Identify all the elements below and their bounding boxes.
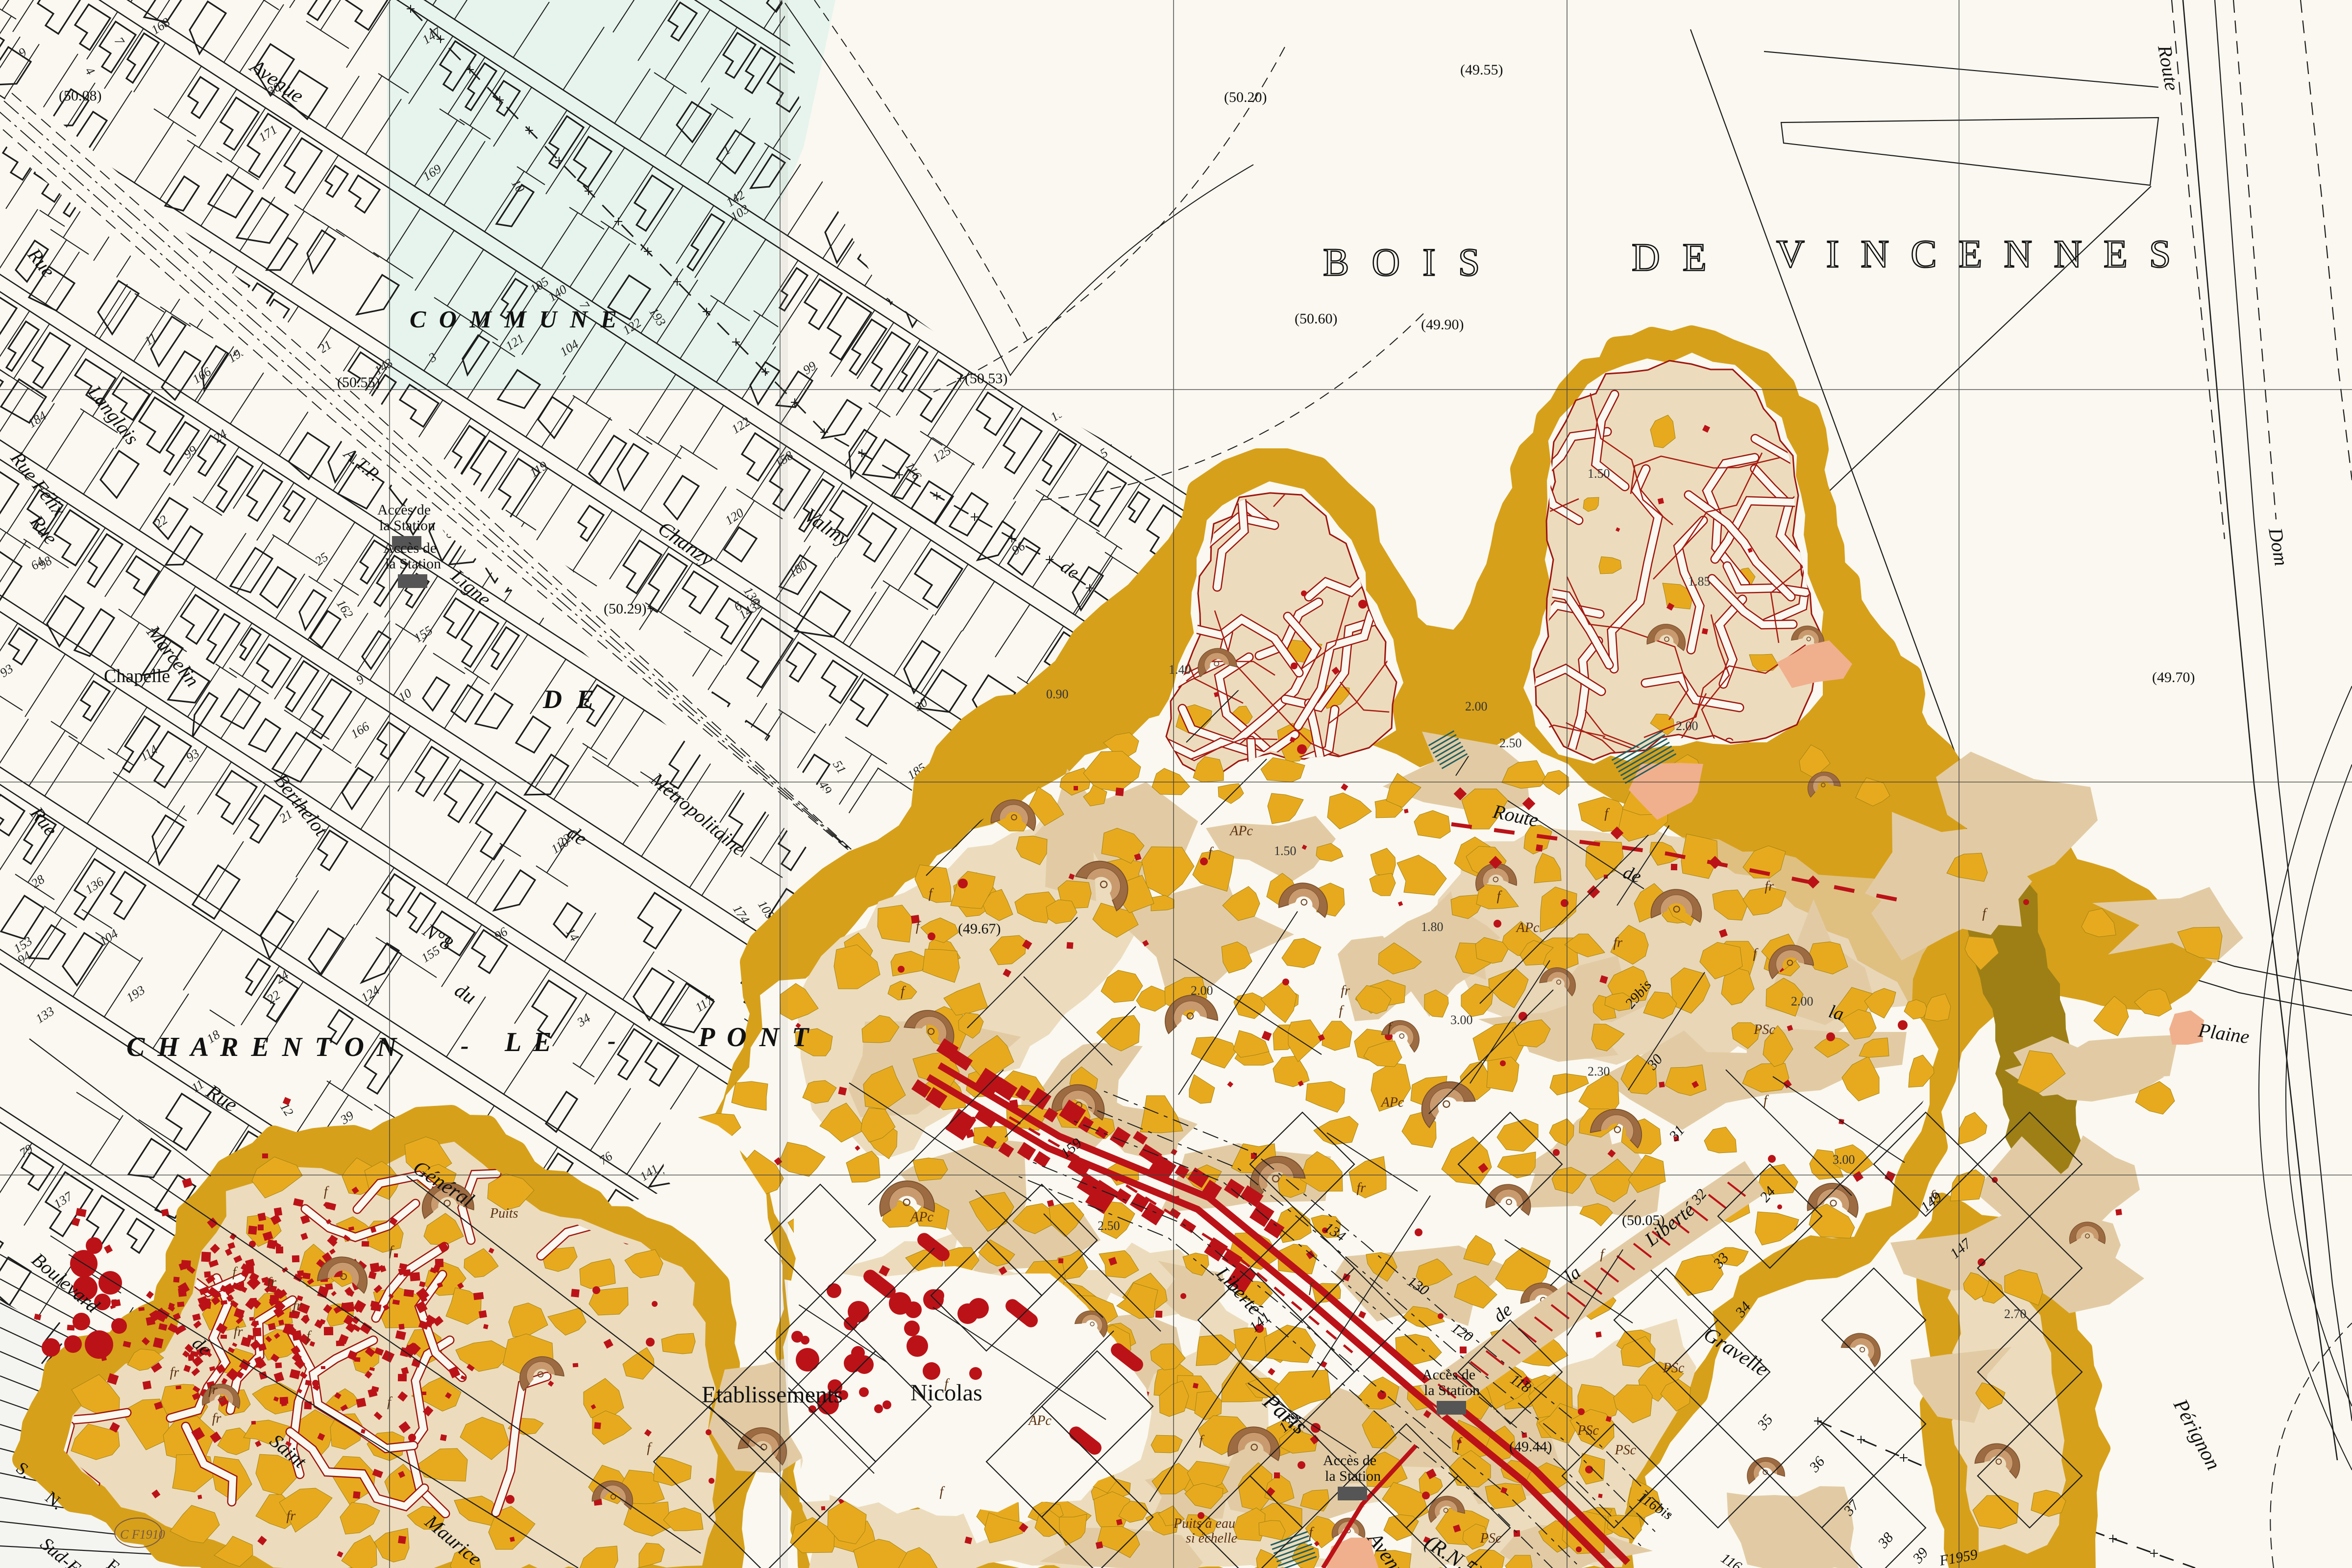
svg-text:Accès de: Accès de — [377, 502, 431, 518]
svg-text:1.85: 1.85 — [1688, 574, 1711, 588]
svg-text:BOIS: BOIS — [1323, 241, 1502, 284]
svg-text:-: - — [608, 1027, 616, 1054]
svg-text:D E: D E — [542, 685, 598, 714]
svg-text:la Station: la Station — [379, 517, 435, 534]
svg-text:fr: fr — [267, 1275, 276, 1290]
svg-text:APc: APc — [1028, 1413, 1052, 1428]
svg-text:APc: APc — [1229, 824, 1253, 839]
svg-text:Accès de: Accès de — [1422, 1367, 1475, 1383]
svg-text:2.00: 2.00 — [1791, 994, 1813, 1008]
svg-text:(49.90): (49.90) — [1421, 317, 1464, 333]
svg-text:C F1910: C F1910 — [120, 1527, 165, 1542]
svg-text:(49.55): (49.55) — [1460, 62, 1503, 78]
svg-text:Accès de: Accès de — [1323, 1452, 1376, 1469]
svg-text:PSc: PSc — [1480, 1531, 1502, 1546]
svg-text:fr: fr — [1341, 983, 1350, 999]
svg-text:2.50: 2.50 — [1499, 736, 1522, 750]
svg-text:(50.29)+: (50.29)+ — [604, 601, 655, 617]
svg-text:Etablissements: Etablissements — [702, 1382, 843, 1408]
svg-text:0.90: 0.90 — [1046, 687, 1069, 701]
svg-text:fr: fr — [1357, 1180, 1366, 1196]
svg-text:Puits: Puits — [490, 1206, 518, 1221]
svg-text:+(50.53): +(50.53) — [956, 370, 1007, 387]
svg-text:(50.55): (50.55) — [337, 374, 380, 391]
svg-text:Accès de: Accès de — [383, 540, 437, 556]
svg-text:Chapelle: Chapelle — [104, 666, 170, 686]
svg-text:2.50: 2.50 — [1098, 1219, 1120, 1233]
svg-text:PSc: PSc — [1663, 1360, 1685, 1375]
svg-text:1.50: 1.50 — [1588, 466, 1610, 481]
svg-text:2.70: 2.70 — [2004, 1307, 2027, 1321]
svg-text:2.00: 2.00 — [1676, 719, 1698, 733]
svg-text:DE: DE — [1632, 236, 1729, 279]
svg-text:1.40: 1.40 — [1169, 662, 1191, 677]
svg-text:(50.60): (50.60) — [1295, 311, 1337, 327]
svg-text:fr: fr — [287, 1509, 296, 1524]
svg-text:3.00: 3.00 — [1450, 1013, 1473, 1027]
svg-text:-: - — [461, 1031, 469, 1059]
svg-text:fr: fr — [1613, 935, 1622, 951]
svg-text:APc: APc — [909, 1209, 933, 1225]
svg-text:fr: fr — [1764, 879, 1774, 894]
svg-text:APc: APc — [1516, 920, 1540, 935]
svg-text:APc: APc — [1380, 1095, 1404, 1110]
svg-text:VINCENNES: VINCENNES — [1776, 233, 2192, 276]
svg-text:PSc: PSc — [1577, 1423, 1599, 1438]
svg-text:2.00: 2.00 — [1465, 699, 1488, 713]
svg-text:fr: fr — [212, 1411, 221, 1426]
svg-text:la Station: la Station — [385, 556, 441, 572]
svg-text:3.00: 3.00 — [1833, 1152, 1855, 1167]
svg-text:1.80: 1.80 — [1421, 920, 1444, 934]
svg-text:C O M M U N E: C O M M U N E — [410, 305, 620, 333]
svg-text:2.00: 2.00 — [1191, 983, 1213, 998]
svg-text:la Station: la Station — [1424, 1382, 1480, 1398]
svg-text:Puits à eau: Puits à eau — [1173, 1516, 1235, 1531]
svg-text:si échelle: si échelle — [1186, 1531, 1237, 1546]
svg-text:(50.08): (50.08) — [59, 88, 101, 104]
svg-text:1.50: 1.50 — [1274, 844, 1297, 858]
svg-text:(49.67): (49.67) — [958, 921, 1001, 937]
svg-text:(50.20): (50.20) — [1224, 89, 1267, 105]
svg-text:(49.44): (49.44) — [1509, 1439, 1552, 1455]
svg-text:fr: fr — [170, 1365, 179, 1380]
svg-text:C H A R E N T O N: C H A R E N T O N — [126, 1032, 399, 1062]
svg-text:fr: fr — [234, 1324, 243, 1339]
svg-text:PSc: PSc — [1614, 1443, 1636, 1458]
svg-text:la Station: la Station — [1325, 1468, 1381, 1484]
svg-text:PSc: PSc — [1753, 1022, 1775, 1037]
svg-text:(49.70): (49.70) — [2152, 669, 2195, 686]
svg-text:fr: fr — [208, 1382, 218, 1397]
svg-text:2.30: 2.30 — [1588, 1064, 1610, 1078]
svg-text:fr: fr — [293, 1298, 302, 1313]
svg-text:L E: L E — [504, 1027, 554, 1057]
svg-text:(50.05): (50.05) — [1622, 1212, 1665, 1228]
svg-text:P O N T: P O N T — [698, 1022, 811, 1053]
